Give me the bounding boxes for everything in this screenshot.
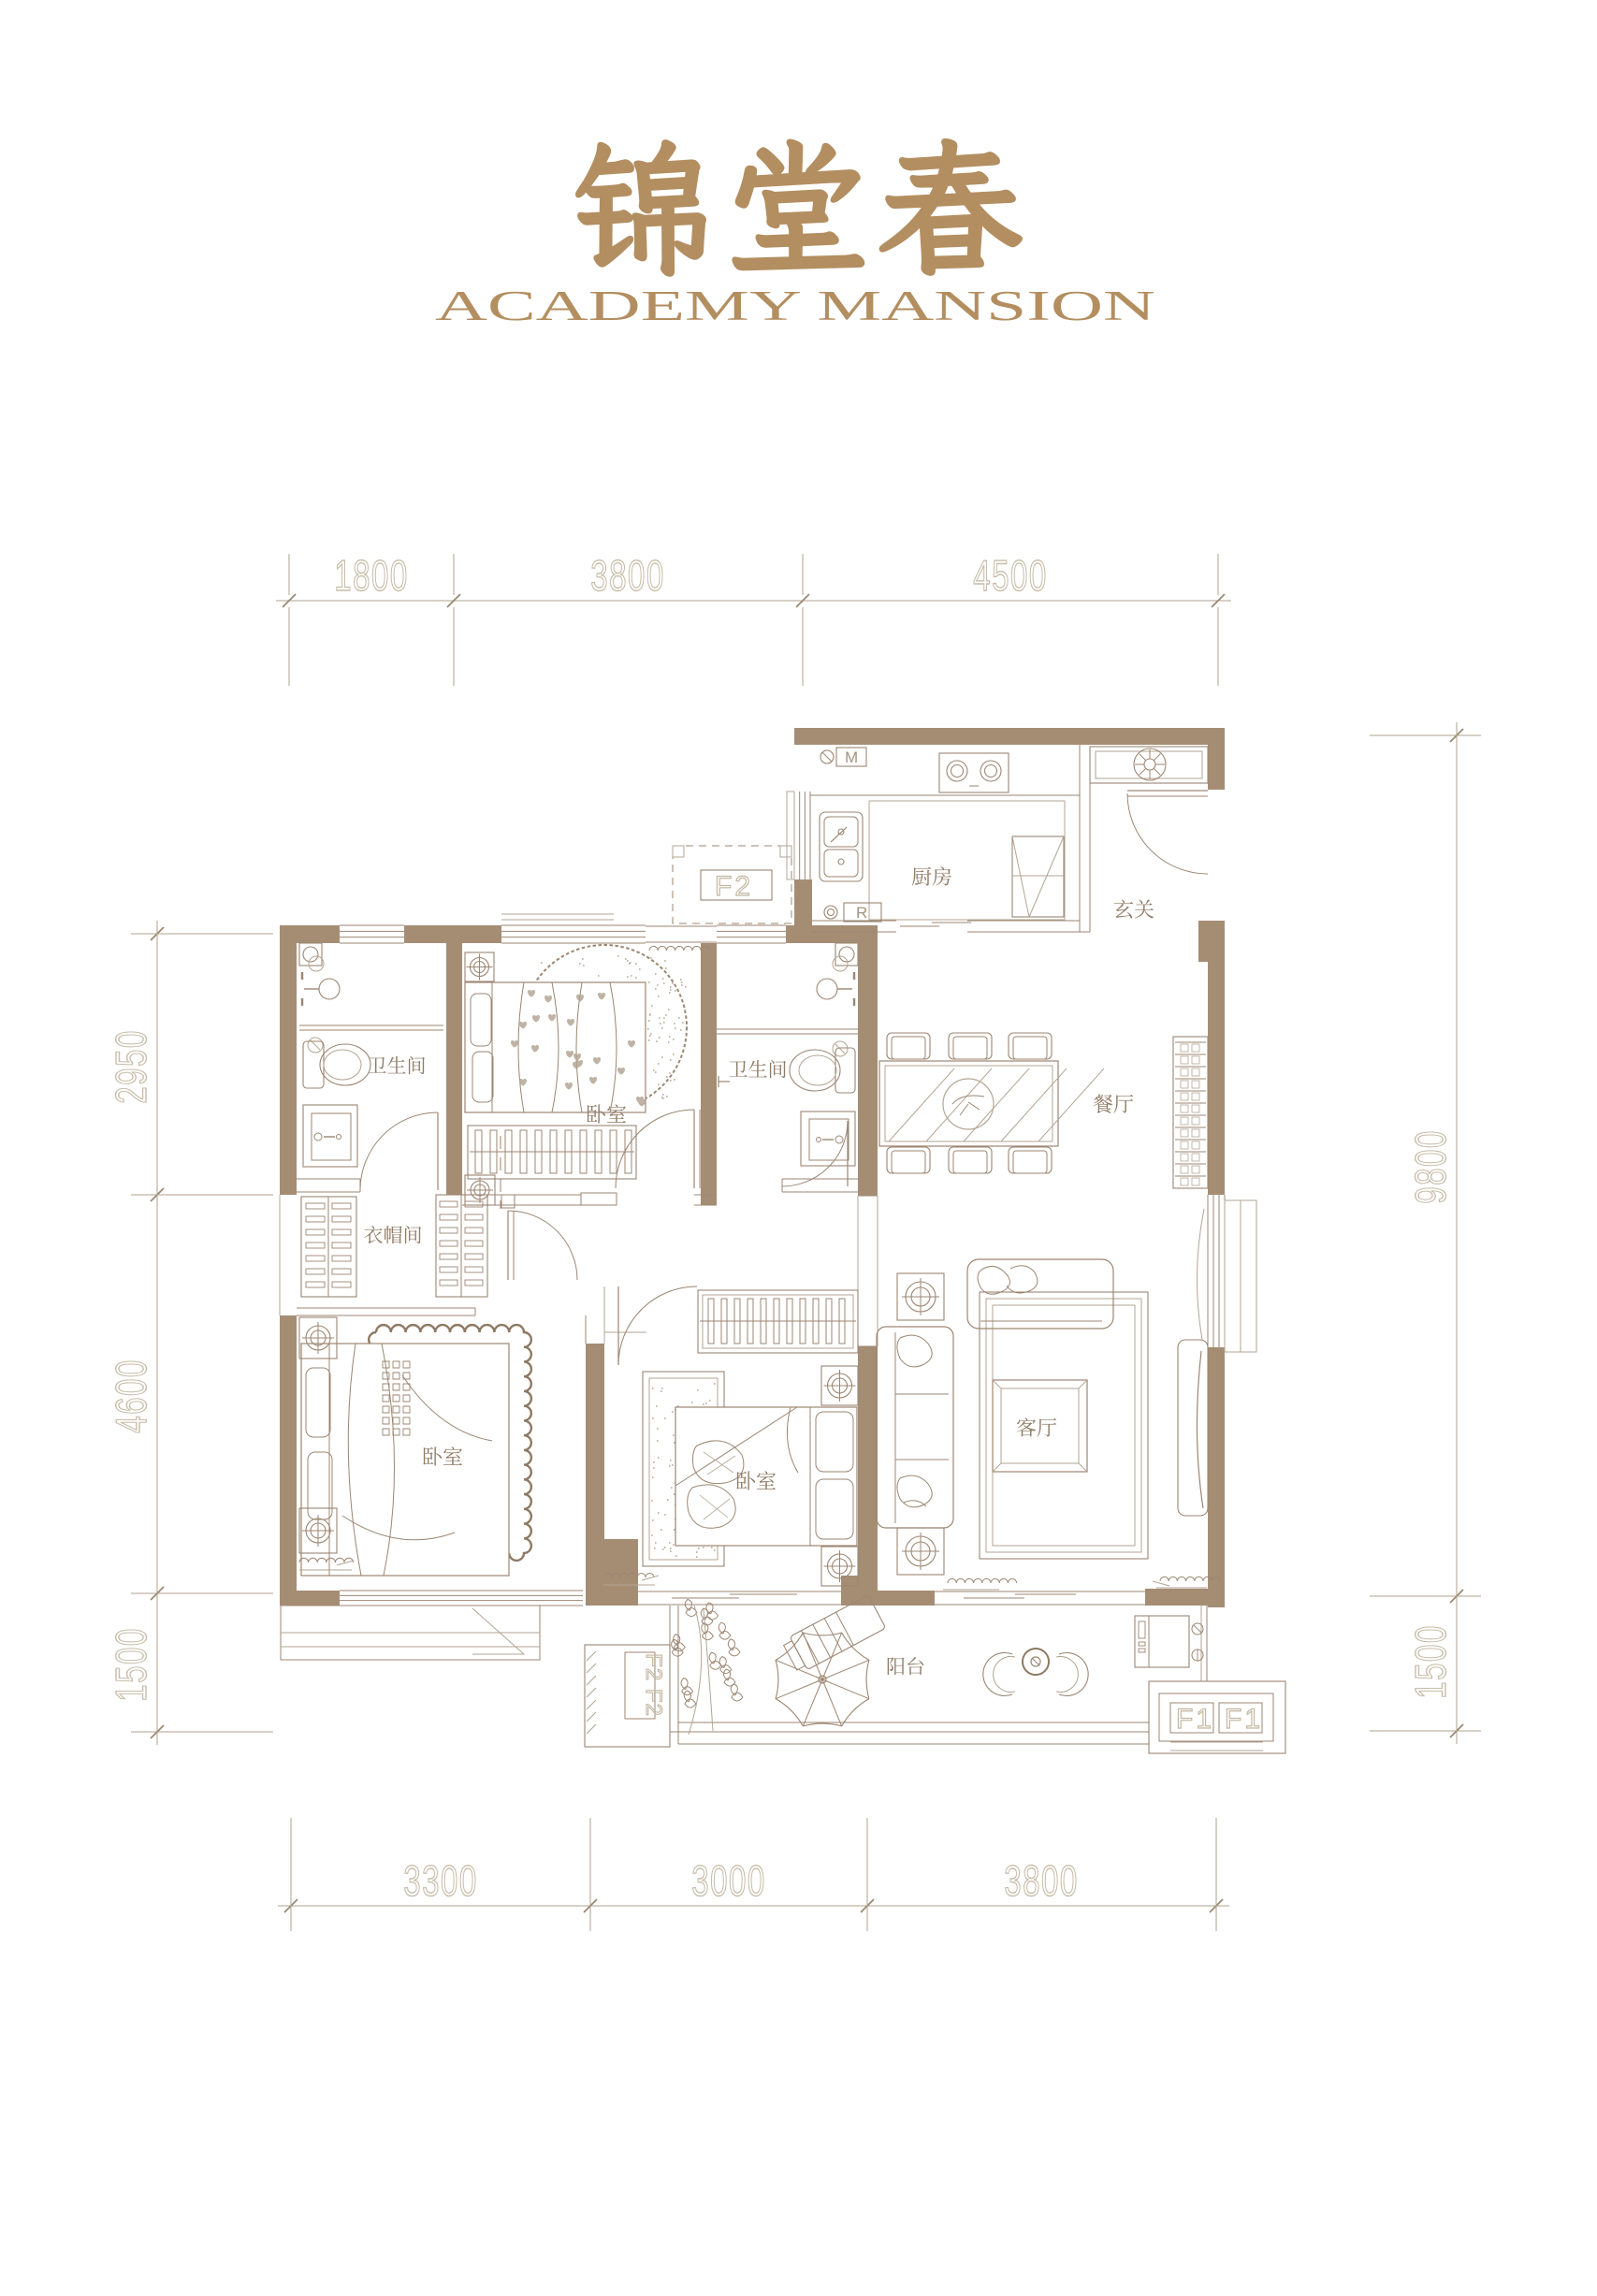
- svg-text:1800: 1800: [334, 553, 408, 600]
- svg-text:3800: 3800: [1004, 1858, 1078, 1905]
- svg-text:9800: 9800: [1408, 1129, 1455, 1203]
- svg-text:F1: F1: [1225, 1704, 1263, 1735]
- svg-text:2950: 2950: [109, 1029, 155, 1103]
- svg-text:F2: F2: [715, 871, 753, 902]
- svg-text:4500: 4500: [973, 553, 1047, 600]
- svg-text:3300: 3300: [403, 1858, 477, 1905]
- svg-text:3800: 3800: [590, 553, 664, 600]
- svg-text:4600: 4600: [109, 1359, 155, 1432]
- svg-text:1500: 1500: [109, 1627, 155, 1701]
- svg-text:R: R: [856, 904, 867, 922]
- svg-text:ACADEMY MANSION: ACADEMY MANSION: [435, 283, 1155, 329]
- svg-text:F2 F2: F2 F2: [641, 1653, 666, 1717]
- svg-text:M: M: [845, 748, 858, 766]
- svg-text:3000: 3000: [691, 1858, 765, 1905]
- svg-text:1500: 1500: [1408, 1624, 1455, 1698]
- svg-text:F1: F1: [1176, 1704, 1214, 1735]
